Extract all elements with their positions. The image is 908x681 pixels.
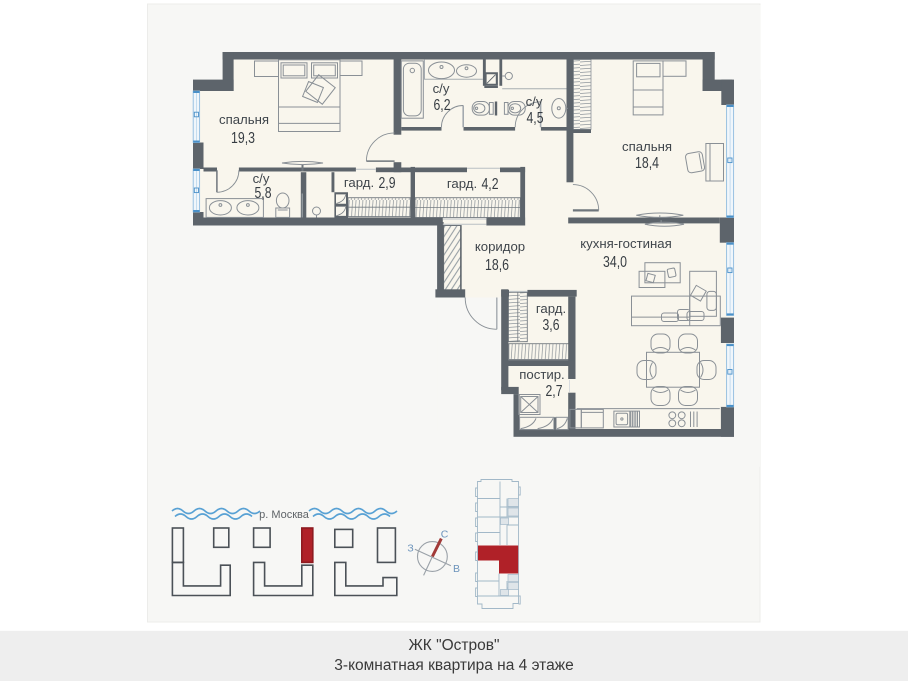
svg-text:3,6: 3,6: [543, 317, 560, 334]
svg-text:кухня-гостиная: кухня-гостиная: [580, 236, 672, 251]
svg-text:постир.: постир.: [519, 367, 564, 382]
svg-text:спальня: спальня: [219, 112, 269, 127]
svg-text:гард.: гард.: [536, 301, 566, 316]
svg-text:р. Москва: р. Москва: [259, 509, 310, 521]
svg-text:с/у: с/у: [253, 171, 270, 186]
svg-text:гард.: гард.: [344, 175, 374, 190]
svg-text:З: З: [407, 543, 413, 555]
svg-text:2,9: 2,9: [379, 175, 396, 192]
svg-text:спальня: спальня: [622, 139, 672, 154]
svg-text:19,3: 19,3: [231, 130, 255, 147]
svg-text:34,0: 34,0: [603, 254, 627, 271]
svg-text:18,4: 18,4: [635, 155, 659, 172]
svg-text:гард.: гард.: [447, 176, 477, 191]
svg-text:ЖК "Остров": ЖК "Остров": [408, 637, 499, 654]
svg-text:коридор: коридор: [475, 239, 525, 254]
svg-text:5,8: 5,8: [255, 185, 272, 202]
svg-text:4,2: 4,2: [482, 176, 499, 193]
svg-text:с/у: с/у: [526, 94, 543, 109]
svg-text:3-комнатная квартира на 4 этаж: 3-комнатная квартира на 4 этаже: [334, 657, 573, 674]
svg-text:В: В: [453, 563, 460, 575]
svg-text:с/у: с/у: [433, 81, 450, 96]
svg-text:18,6: 18,6: [485, 257, 509, 274]
svg-text:С: С: [441, 529, 449, 541]
svg-text:6,2: 6,2: [434, 97, 451, 114]
svg-text:4,5: 4,5: [527, 110, 544, 127]
svg-text:2,7: 2,7: [546, 383, 563, 400]
